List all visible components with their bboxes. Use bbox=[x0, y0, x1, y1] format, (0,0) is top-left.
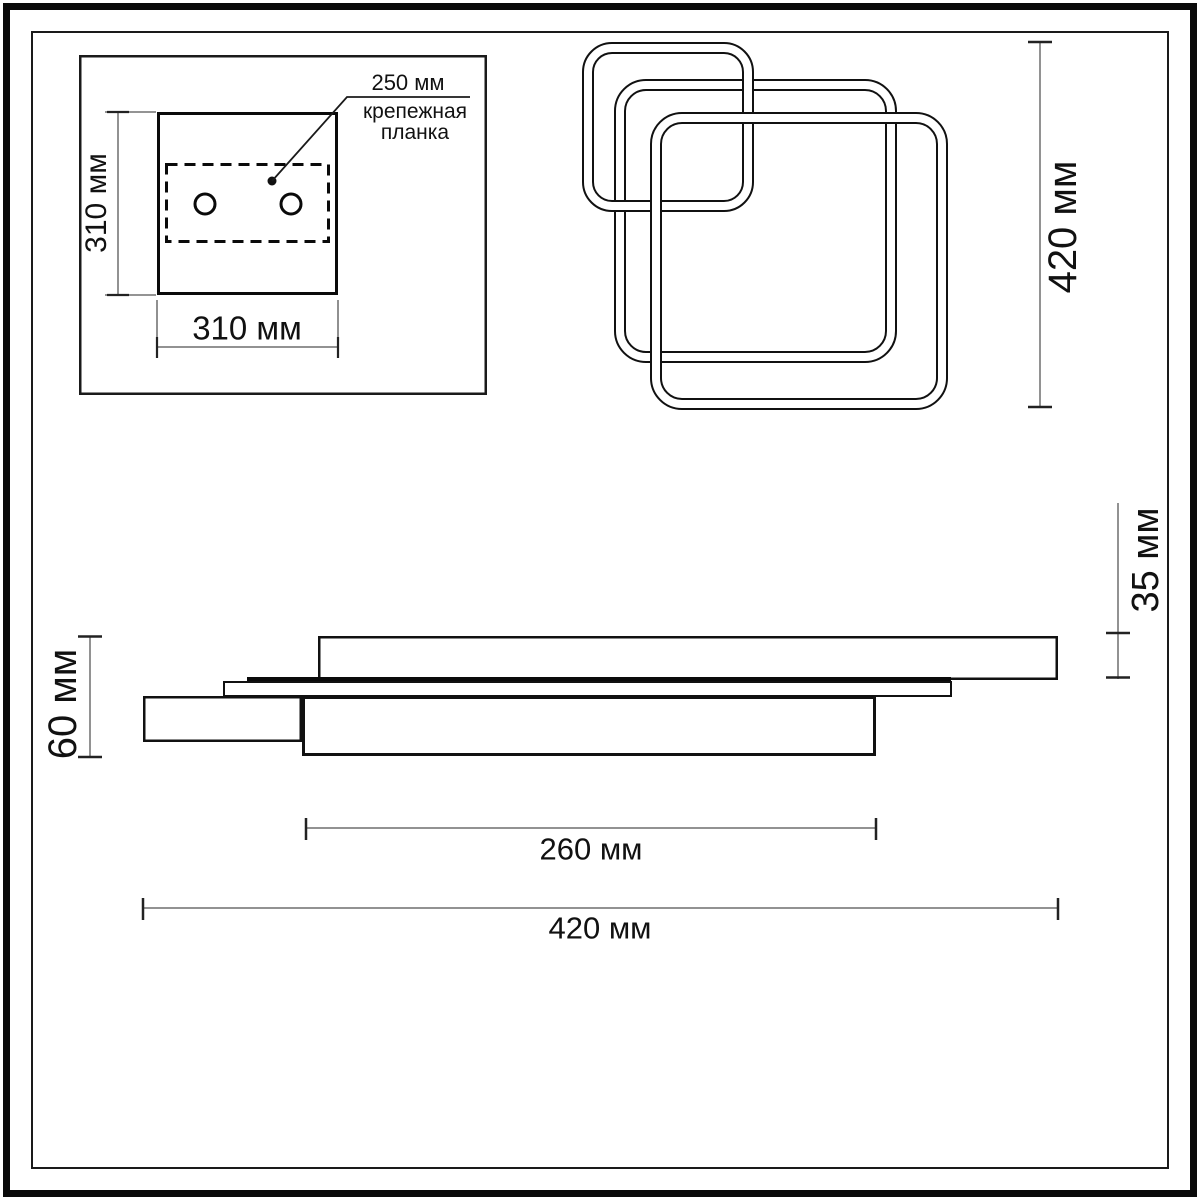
bracket-name-label: крепежная планка bbox=[363, 101, 467, 143]
mounting-hole-right bbox=[281, 194, 301, 214]
side-height-label: 60 мм bbox=[43, 649, 83, 760]
fixture-side-view bbox=[60, 490, 1140, 940]
side-base-block bbox=[304, 698, 875, 755]
mounting-plate-diagram bbox=[60, 40, 500, 410]
plate-width-label: 310 мм bbox=[192, 312, 302, 345]
base-width-label: 260 мм bbox=[540, 834, 643, 865]
side-middle-bar bbox=[224, 682, 951, 696]
bracket-name-line1: крепежная bbox=[363, 101, 467, 122]
side-top-slab bbox=[319, 637, 1057, 679]
fixture-top-view bbox=[540, 20, 1080, 430]
panel-thickness-label: 35 мм bbox=[1127, 507, 1165, 612]
mounting-plate bbox=[159, 114, 337, 294]
mounting-hole-left bbox=[195, 194, 215, 214]
side-left-block bbox=[144, 697, 301, 741]
fixture-height-label: 420 мм bbox=[1043, 161, 1083, 294]
drawing-canvas: 310 мм 310 мм 250 мм крепежная планка 42… bbox=[0, 0, 1200, 1200]
bracket-width-label: 250 мм bbox=[371, 72, 444, 94]
fixture-width-label: 420 мм bbox=[549, 913, 652, 944]
bracket-name-line2: планка bbox=[363, 122, 467, 143]
plate-height-label: 310 мм bbox=[82, 153, 112, 253]
